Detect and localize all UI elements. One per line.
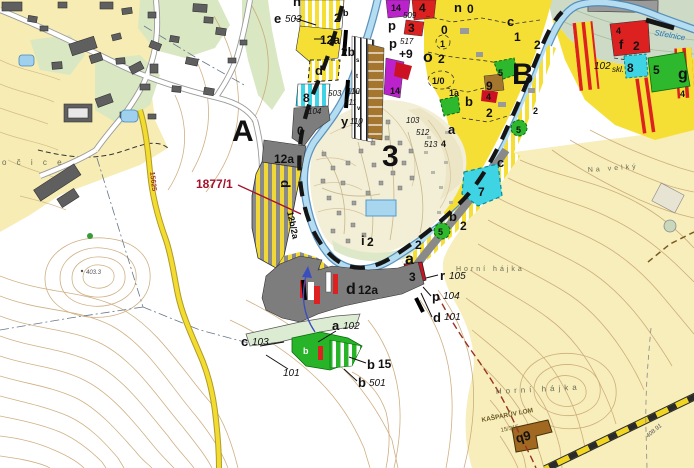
map-label-4-crimson: 4 bbox=[486, 92, 491, 102]
map-label-3-ford: 3 bbox=[409, 270, 416, 284]
map-label-cell-t: t bbox=[356, 74, 358, 80]
map-label-o-2: 2 bbox=[438, 52, 445, 66]
tree-clump bbox=[664, 220, 676, 232]
map-label-n-0: 0 bbox=[467, 2, 474, 16]
map-label-b-east: b bbox=[449, 209, 457, 224]
map-label-104-strip: 104 bbox=[308, 107, 322, 116]
map-label-b-501: 501 bbox=[369, 378, 386, 389]
map-label-spot-403: 403.3 bbox=[86, 270, 102, 276]
map-label-9-brown: 9 bbox=[486, 79, 493, 93]
map-label-2-f: 2 bbox=[633, 39, 640, 53]
map-label-a-ford: a bbox=[405, 251, 414, 268]
map-label-2-east2: 2 bbox=[415, 238, 422, 252]
map-label-i-2: 2 bbox=[367, 235, 374, 249]
pool bbox=[366, 200, 396, 216]
spot-height-dot bbox=[81, 270, 83, 272]
map-label-b-501l: b bbox=[358, 375, 366, 390]
map-label-2-ne1: 2 bbox=[534, 38, 541, 52]
map-label-r: r bbox=[440, 268, 445, 283]
map-label-c-ne: c bbox=[507, 14, 514, 29]
map-label-o: o bbox=[423, 49, 433, 66]
map-label-2b-sup-2: 2 bbox=[334, 11, 341, 25]
map-label-i: i bbox=[361, 233, 365, 248]
map-label-5-circle-e: 5 bbox=[438, 227, 443, 237]
map-label-a-102: 102 bbox=[343, 321, 360, 332]
map-label-p-3: p bbox=[432, 289, 440, 304]
map-label-c-east: c bbox=[497, 155, 504, 170]
map-label-f: f bbox=[619, 37, 624, 52]
map-label-e: e bbox=[274, 11, 281, 26]
map-label-p-104: 104 bbox=[443, 291, 460, 302]
map-label-4-top: 4 bbox=[419, 1, 426, 15]
tree-symbol bbox=[87, 233, 93, 239]
map-label-14-low: 14 bbox=[390, 86, 400, 96]
map-label-ocice: o č i c e bbox=[2, 158, 66, 167]
parcel-8 bbox=[296, 84, 330, 108]
map-label-plus9: +9 bbox=[399, 47, 413, 61]
map-label-b-15: 15 bbox=[378, 357, 392, 371]
red-bar-3 bbox=[333, 274, 338, 294]
map-label-7-cyan: 7 bbox=[478, 185, 485, 199]
map-canvas[interactable]: AB31877/1e503n2b12a2bd8503110511104y1100… bbox=[0, 0, 694, 468]
map-label-y: y bbox=[341, 114, 349, 129]
map-label-d-12a: d bbox=[346, 281, 356, 298]
map-label-12a-upper: 12a bbox=[320, 33, 340, 47]
map-label-513-camp: 513 bbox=[424, 140, 438, 149]
map-label-8-cyan-e: 8 bbox=[627, 61, 634, 75]
map-label-517: 517 bbox=[400, 37, 414, 46]
map-label-1-ne: 1 bbox=[514, 30, 521, 44]
map-label-509: 509 bbox=[403, 11, 417, 20]
map-label-511-strip: 511 bbox=[344, 98, 357, 107]
map-label-101-s: 101 bbox=[283, 368, 300, 379]
map-label-b-green: b bbox=[303, 346, 309, 356]
map-label-2b-lower: 2b bbox=[341, 45, 355, 59]
map-label-2-beast: 2 bbox=[460, 219, 467, 233]
map-label-a-ne: a bbox=[448, 122, 456, 137]
brown-cells bbox=[368, 44, 384, 140]
map-label-a-s: a bbox=[332, 318, 340, 333]
map-label-parcel-1877-1: 1877/1 bbox=[196, 177, 233, 191]
map-label-512-camp: 512 bbox=[416, 128, 430, 137]
map-label-4-g: 4 bbox=[680, 89, 685, 99]
map-label-1-0: 1/0 bbox=[432, 76, 445, 86]
map-label-d-rot: d bbox=[278, 180, 293, 188]
map-label-2-ne2: 2 bbox=[486, 106, 493, 120]
map-label-n-top: n bbox=[293, 0, 301, 9]
map-label-e-503: 503 bbox=[285, 14, 302, 25]
map-label-p-1: p bbox=[388, 18, 396, 33]
map-label-c-s: c bbox=[241, 334, 248, 349]
map-label-p-2: p bbox=[389, 36, 397, 51]
map-label-region-a: A bbox=[232, 115, 254, 148]
map-label-4-camp: 4 bbox=[441, 139, 446, 149]
map-label-5-circle-b: 5 bbox=[516, 125, 521, 135]
map-label-skl: skl. bbox=[612, 65, 624, 74]
map-label-g: g bbox=[678, 66, 688, 83]
map-label-0-gray: 0 bbox=[297, 124, 304, 138]
map-label-5-ne: 5 bbox=[498, 68, 503, 78]
white-bar-1 bbox=[308, 282, 314, 300]
map-label-d-upper: d bbox=[315, 63, 323, 78]
map-label-b-15l: b bbox=[367, 357, 375, 372]
map-label-3-red-top: 3 bbox=[408, 21, 415, 35]
map-label-14-top: 14 bbox=[391, 3, 401, 13]
map-label-4-f: 4 bbox=[616, 26, 621, 36]
map-label-c-103: 103 bbox=[252, 337, 269, 348]
map-label-503-strip: 503 bbox=[328, 89, 342, 98]
map-label-1-circle: 1 bbox=[440, 39, 445, 49]
map-label-n-ne: n bbox=[454, 0, 462, 15]
map-label-5-green-e: 5 bbox=[653, 63, 660, 77]
map-label-b-ne: b bbox=[465, 94, 473, 109]
map-label-d-101: 101 bbox=[444, 312, 461, 323]
map-label-12a-gray: 12a bbox=[274, 152, 294, 166]
map-label-region-3: 3 bbox=[382, 140, 399, 173]
red-bar-green bbox=[318, 346, 323, 360]
map-label-cell-u: u bbox=[356, 90, 360, 96]
map-label-8-strip: 8 bbox=[303, 91, 310, 105]
map-label-d-s: d bbox=[433, 310, 441, 325]
white-bar-2 bbox=[326, 272, 331, 292]
map-label-1a: 1a bbox=[449, 88, 460, 98]
red-bar-2 bbox=[314, 286, 320, 304]
map-label-0-yellow: 0 bbox=[441, 23, 448, 37]
map-label-2b-sup-b: b bbox=[343, 8, 349, 18]
map-label-region-b: B bbox=[512, 58, 534, 91]
map-label-2-ne3: 2 bbox=[533, 106, 538, 116]
map-label-horni-hajka-1: Horní hájka bbox=[456, 266, 525, 273]
map-label-d12a-num: 12a bbox=[358, 283, 378, 297]
map-label-103-camp: 103 bbox=[406, 116, 420, 125]
forestry-map-svg: AB31877/1e503n2b12a2bd8503110511104y1100… bbox=[0, 0, 694, 468]
map-label-102-skl: 102 bbox=[594, 61, 611, 72]
